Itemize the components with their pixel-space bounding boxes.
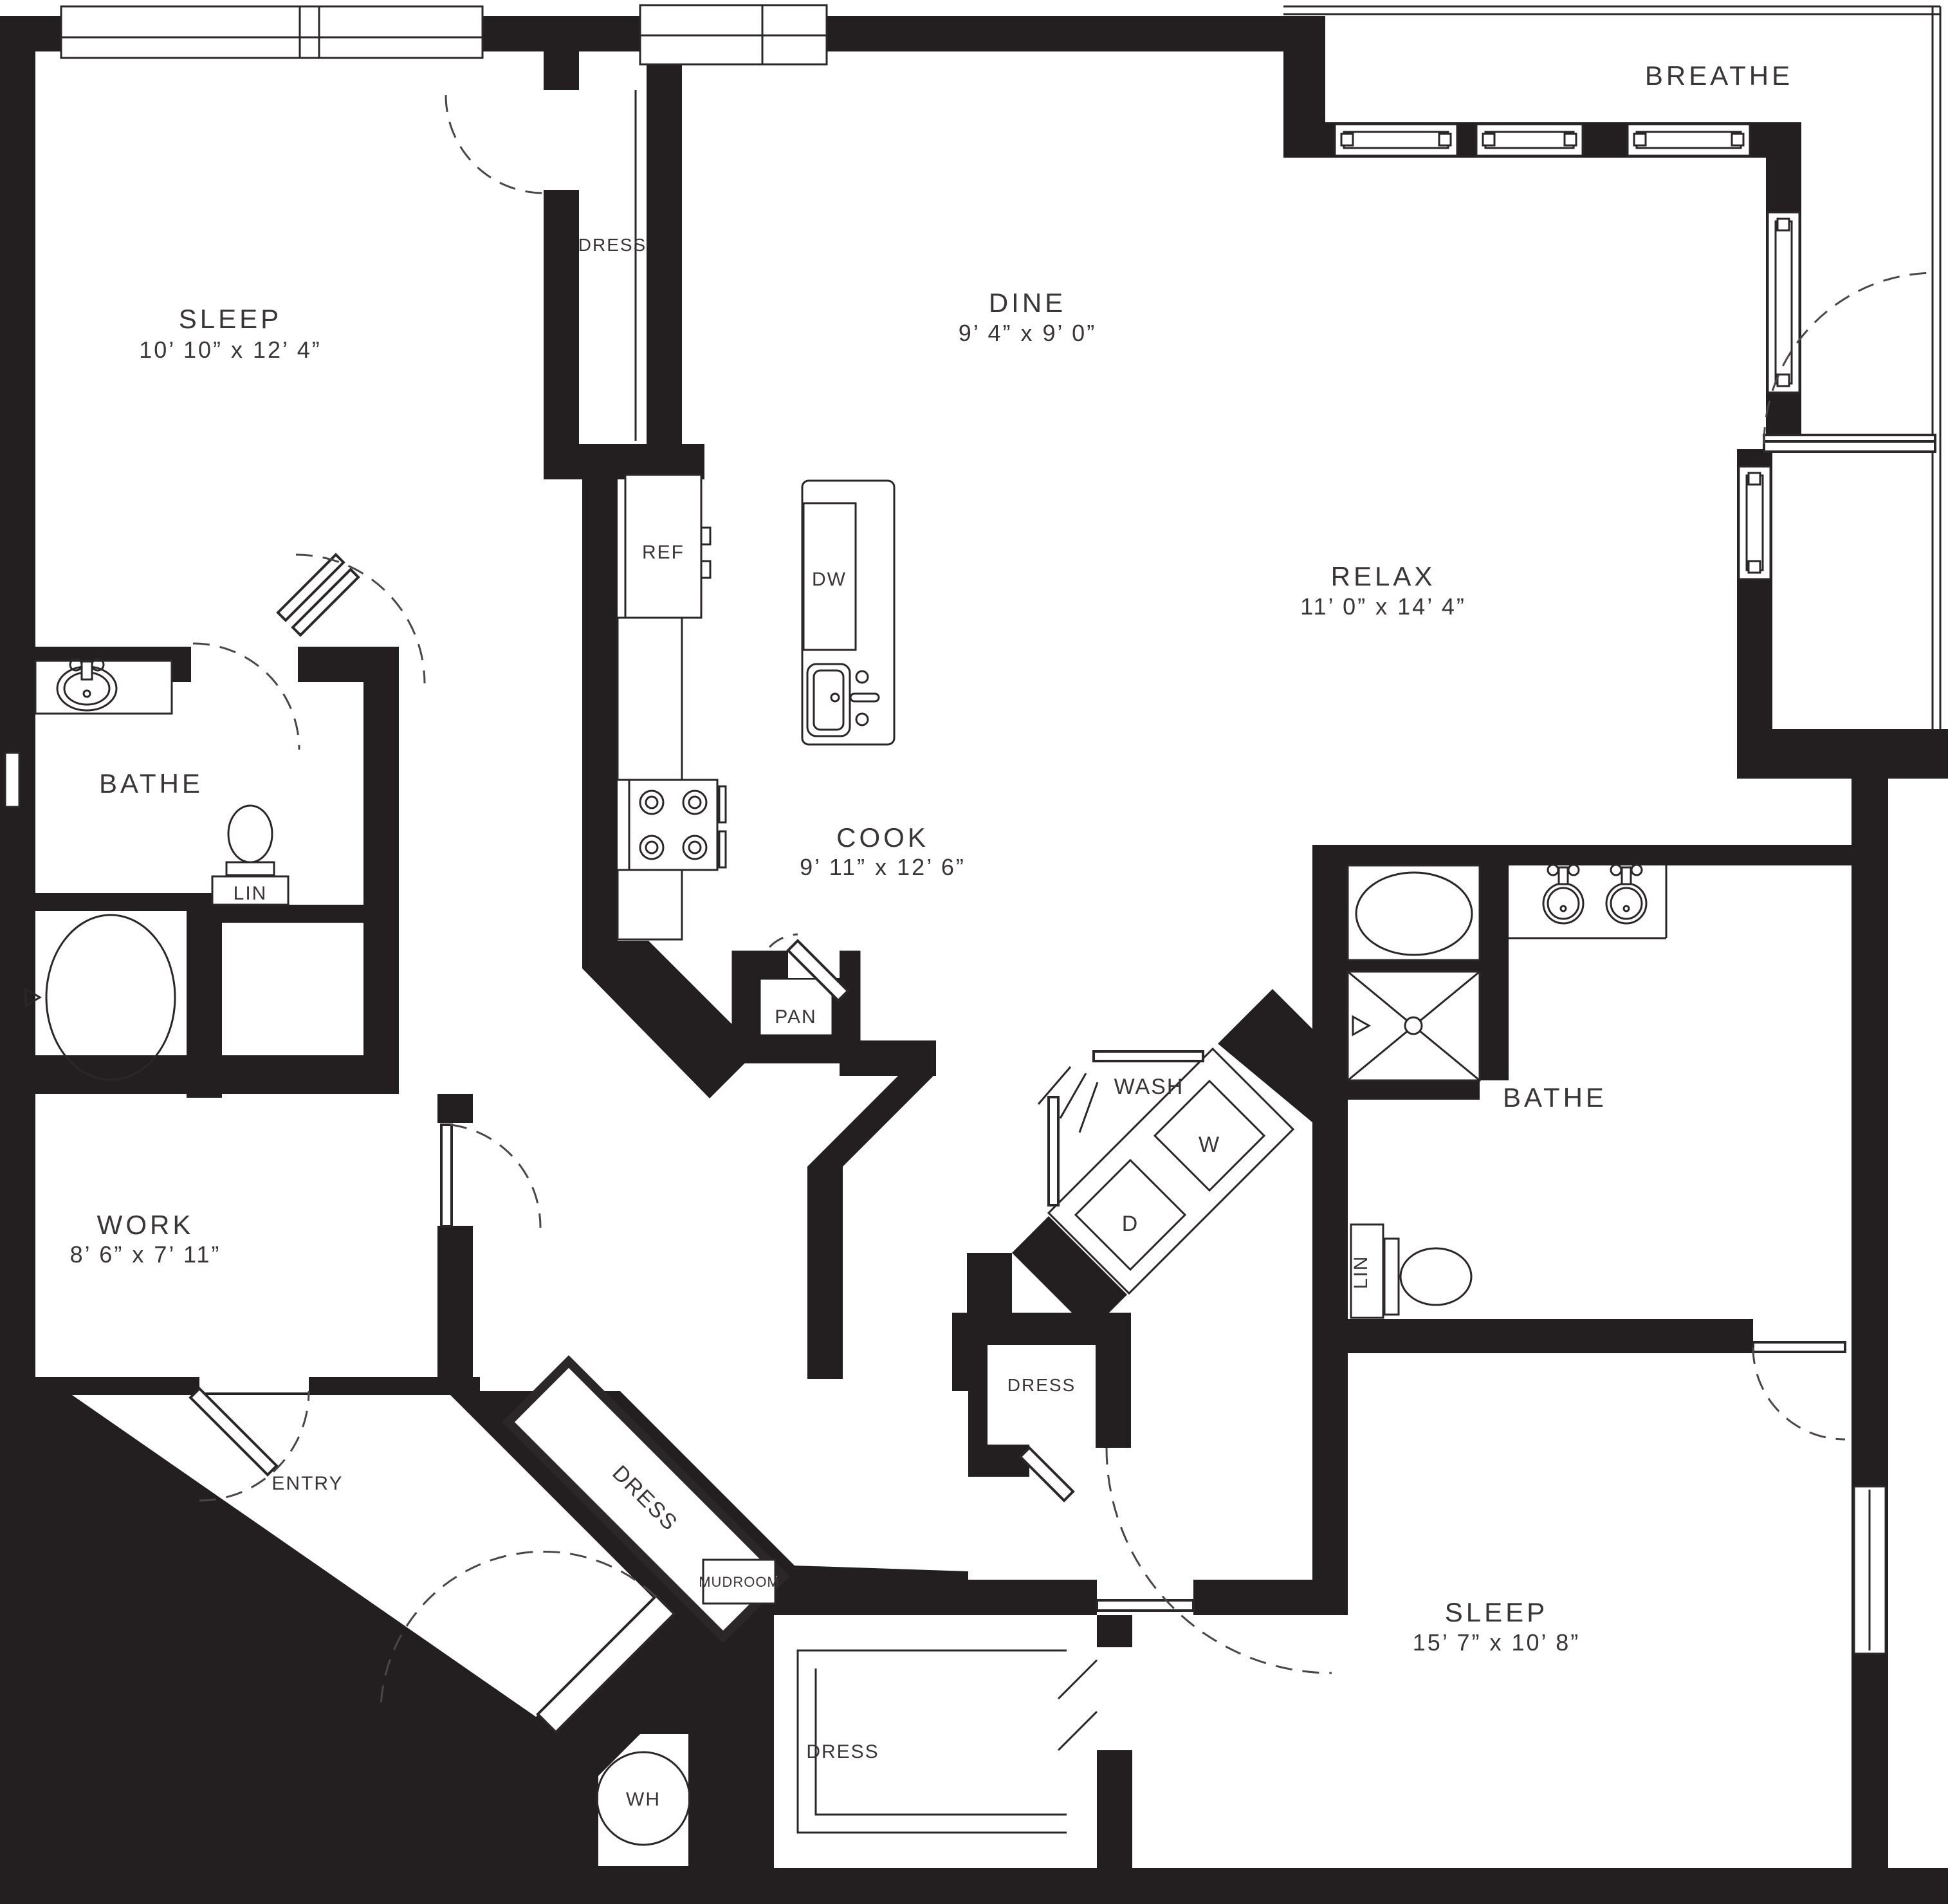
bath2-shower [1348,972,1480,1080]
work-room [441,1125,540,1228]
dims-dine: 9’ 4” x 9’ 0” [959,320,1096,346]
label-bathe1: BATHE [99,768,203,799]
bath1-tub [26,915,175,1080]
window-nook-east [1739,467,1770,579]
label-dw: DW [812,569,847,590]
bath1-toilet [226,806,274,875]
laundry-door-leaf-top [1094,1051,1203,1061]
refrigerator-handle-2 [701,561,710,578]
dims-sleep1: 10’ 10” x 12’ 4” [139,337,321,363]
bath2-tub [1348,865,1480,960]
label-dress-walkin: DRESS [806,1741,879,1762]
window-balcony-3 [1628,124,1750,156]
refrigerator-handle-1 [701,528,710,544]
floor-plan-canvas: SLEEP 10’ 10” x 12’ 4” DRESS DINE 9’ 4” … [0,0,1948,1904]
label-dryer: D [1122,1212,1139,1236]
label-dine: DINE [989,288,1066,318]
window-balcony-2 [1476,124,1583,156]
label-relax: RELAX [1331,561,1436,591]
bath2-sink-2 [1606,865,1646,923]
balcony [1283,6,1940,730]
walkin-door-dash-1 [1058,1660,1097,1699]
dims-work: 8’ 6” x 7’ 11” [70,1241,221,1268]
walls [0,16,1948,1904]
label-bathe2: BATHE [1503,1082,1607,1113]
bath2-sink-1 [1543,865,1583,923]
bath2 [1348,865,1845,1439]
label-washer: W [1199,1132,1220,1157]
sleep2-door-leaf [1097,1600,1193,1611]
dims-relax: 11’ 0” x 14’ 4” [1300,593,1466,620]
bath2-door-leaf [1753,1342,1845,1352]
pantry [746,934,848,1049]
label-lin2: LIN [1350,1255,1372,1289]
label-pan: PAN [775,1006,816,1028]
floor-plan: SLEEP 10’ 10” x 12’ 4” DRESS DINE 9’ 4” … [0,0,1948,1904]
label-ref: REF [642,542,685,563]
laundry-door-dash-1 [1060,1073,1086,1118]
dims-sleep2: 15’ 7” x 10’ 8” [1413,1629,1580,1656]
counter-lower [618,870,682,939]
counter-upper [618,618,682,780]
bath1-door-arc [193,643,299,750]
sleep2-door-arc [1107,1448,1332,1673]
label-wh: WH [626,1789,661,1810]
label-wash: WASH [1114,1075,1184,1099]
label-dress-top: DRESS [578,235,647,255]
work-door-gap [199,1377,309,1392]
label-work: WORK [97,1210,194,1240]
label-mudroom: MUDROOM [699,1574,780,1590]
window-dine [640,5,827,64]
label-cook: COOK [836,822,929,853]
walkin-door-dash-2 [1058,1712,1097,1750]
label-entry: ENTRY [271,1473,343,1494]
dims-cook: 9’ 11” x 12’ 6” [800,854,966,880]
window-sleep2-east [1854,1486,1886,1654]
range [629,780,726,870]
window-bath1-slot [5,753,19,807]
bath2-door-arc [1753,1347,1845,1439]
label-lin1: LIN [234,883,268,904]
kitchen-island [802,481,894,744]
balcony-door-leaf [1764,441,1935,452]
label-dress-hall: DRESS [1007,1375,1076,1395]
label-sleep2: SLEEP [1445,1597,1548,1627]
label-sleep1: SLEEP [179,304,282,334]
bath2-vanity [1509,865,1666,938]
work-east-door-leaf [441,1125,452,1226]
laundry-door-leaf-left [1049,1097,1058,1205]
laundry-door-dash-2 [1080,1082,1098,1132]
label-breathe: BREATHE [1645,60,1793,91]
window-balcony-1 [1335,124,1457,156]
closet1-door-arc [446,95,544,193]
work-east-door-arc [450,1125,540,1228]
window-sleep1 [61,6,482,58]
